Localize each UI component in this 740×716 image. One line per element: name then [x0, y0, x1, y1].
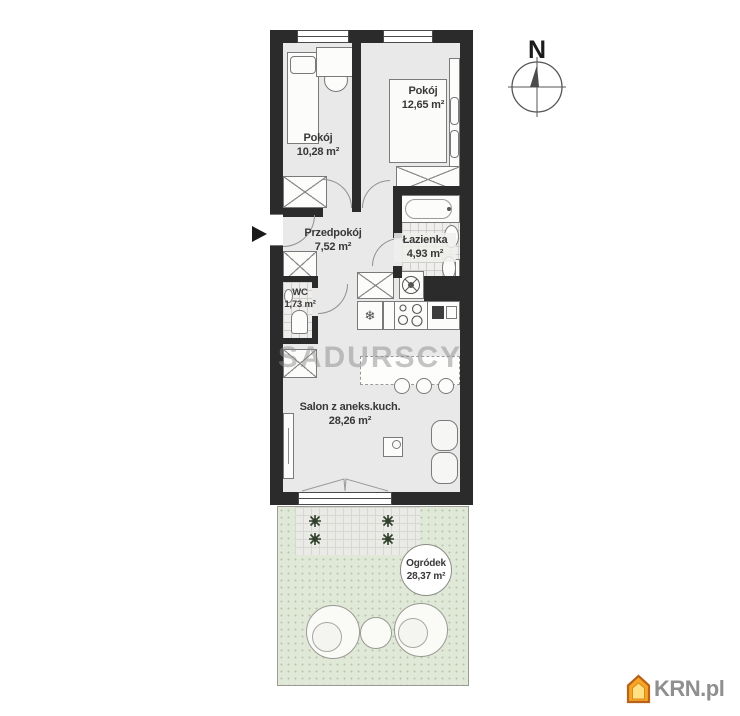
washing-machine-icon — [403, 277, 420, 294]
krn-logo: KRN.pl — [626, 674, 724, 704]
agency-watermark: SADURSCY — [263, 341, 477, 379]
compass-icon — [500, 56, 574, 118]
plant-icon — [309, 515, 394, 545]
balcony-tilt-symbol — [302, 479, 388, 491]
krn-logo-text: KRN.pl — [654, 676, 724, 702]
house-icon — [626, 674, 651, 704]
floor-plan: ❄ Pokój 10,28 m² Pokój 1 — [0, 0, 740, 716]
entrance-arrow-icon — [252, 226, 267, 242]
stove-burners-icon — [399, 305, 423, 327]
tub-faucet-dot — [447, 207, 451, 211]
